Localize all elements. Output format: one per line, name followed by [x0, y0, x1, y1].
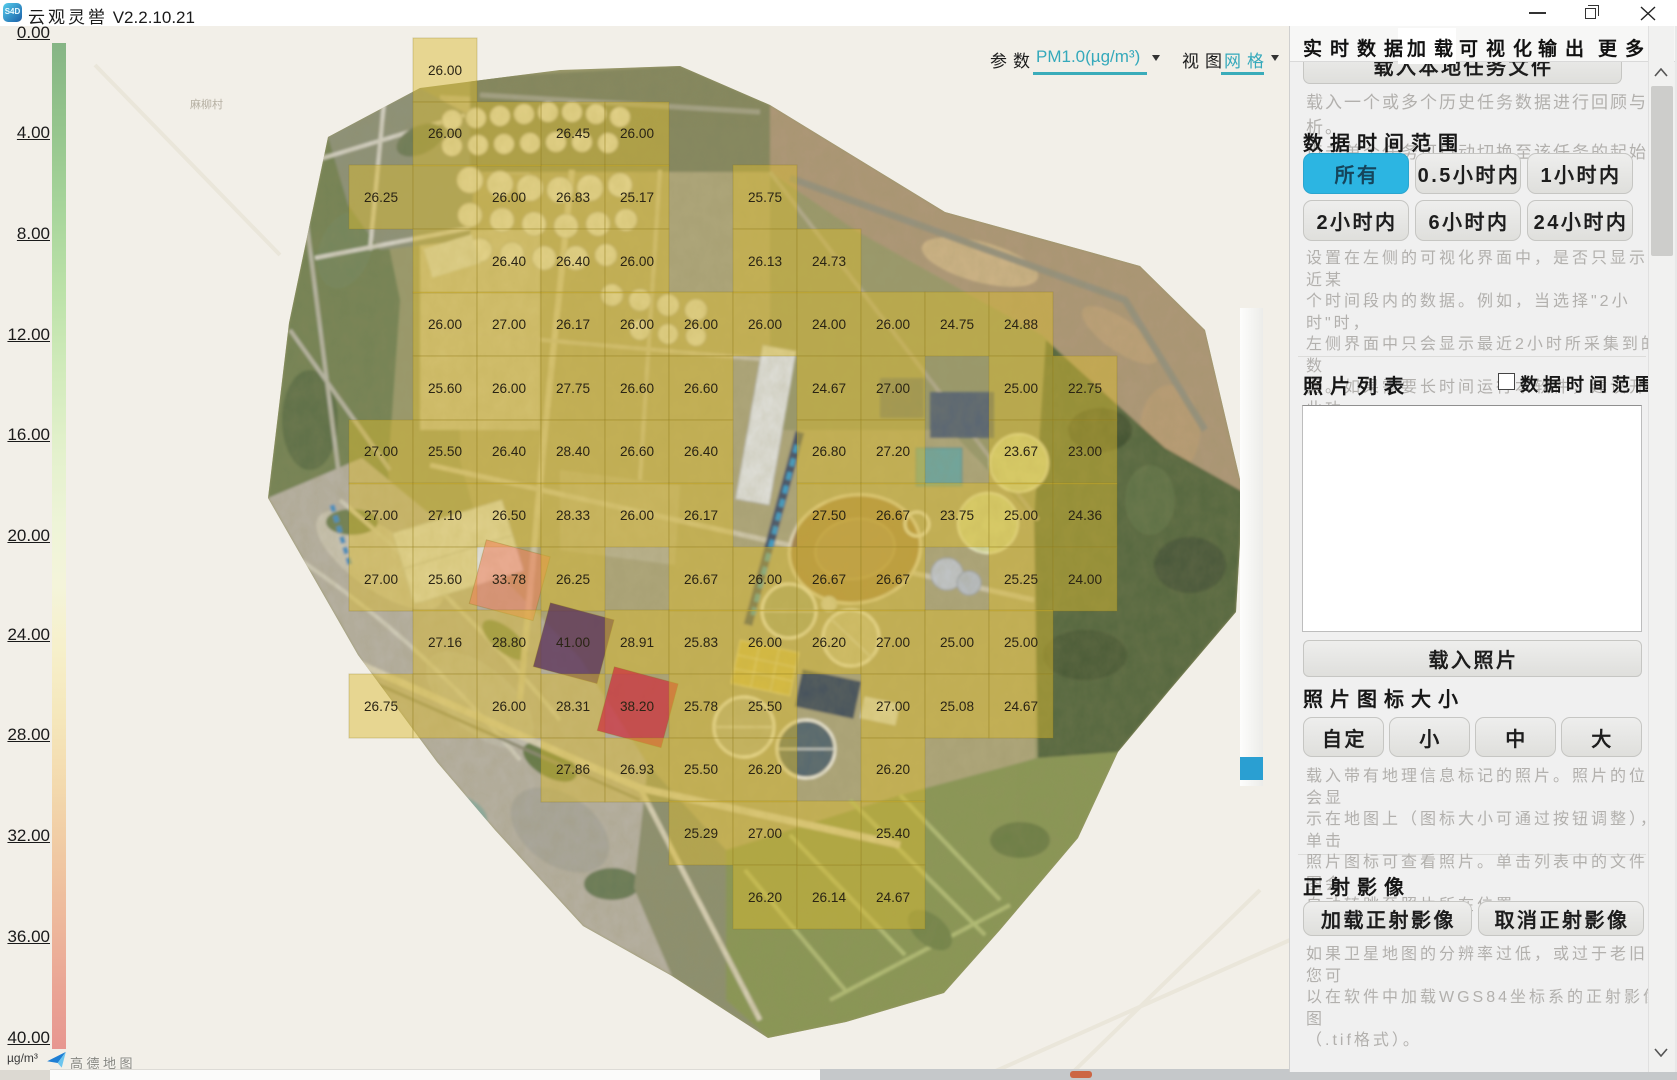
- svg-text:27.75: 27.75: [556, 381, 590, 396]
- svg-text:26.40: 26.40: [684, 444, 718, 459]
- svg-text:26.00: 26.00: [876, 317, 910, 332]
- svg-text:26.60: 26.60: [684, 381, 718, 396]
- svg-text:26.67: 26.67: [684, 572, 718, 587]
- svg-text:25.40: 25.40: [876, 826, 910, 841]
- svg-text:26.40: 26.40: [492, 444, 526, 459]
- svg-text:麻柳村: 麻柳村: [190, 97, 223, 111]
- svg-text:27.00: 27.00: [876, 635, 910, 650]
- svg-text:26.67: 26.67: [876, 572, 910, 587]
- svg-text:24.67: 24.67: [812, 381, 846, 396]
- svg-text:25.50: 25.50: [748, 699, 782, 714]
- svg-text:26.75: 26.75: [364, 699, 398, 714]
- svg-text:28.80: 28.80: [492, 635, 526, 650]
- svg-text:26.60: 26.60: [620, 444, 654, 459]
- svg-text:25.00: 25.00: [1004, 508, 1038, 523]
- svg-text:26.80: 26.80: [812, 444, 846, 459]
- svg-text:25.75: 25.75: [748, 190, 782, 205]
- svg-text:26.50: 26.50: [492, 508, 526, 523]
- svg-text:26.00: 26.00: [620, 317, 654, 332]
- svg-text:26.93: 26.93: [620, 762, 654, 777]
- svg-text:25.08: 25.08: [940, 699, 974, 714]
- svg-text:25.78: 25.78: [684, 699, 718, 714]
- svg-text:25.60: 25.60: [428, 572, 462, 587]
- svg-text:26.40: 26.40: [492, 254, 526, 269]
- svg-text:26.25: 26.25: [364, 190, 398, 205]
- svg-text:26.00: 26.00: [748, 572, 782, 587]
- svg-text:26.00: 26.00: [492, 699, 526, 714]
- svg-text:24.00: 24.00: [1068, 572, 1102, 587]
- svg-text:25.29: 25.29: [684, 826, 718, 841]
- svg-text:26.67: 26.67: [812, 572, 846, 587]
- svg-text:24.88: 24.88: [1004, 317, 1038, 332]
- svg-text:41.00: 41.00: [556, 635, 590, 650]
- svg-text:33.78: 33.78: [492, 572, 526, 587]
- svg-text:28.31: 28.31: [556, 699, 590, 714]
- svg-text:38.20: 38.20: [620, 699, 654, 714]
- svg-text:25.00: 25.00: [1004, 635, 1038, 650]
- svg-text:26.20: 26.20: [748, 890, 782, 905]
- svg-text:26.67: 26.67: [876, 508, 910, 523]
- svg-text:26.13: 26.13: [748, 254, 782, 269]
- svg-text:27.00: 27.00: [876, 381, 910, 396]
- svg-text:26.00: 26.00: [620, 508, 654, 523]
- svg-text:25.50: 25.50: [428, 444, 462, 459]
- svg-text:23.67: 23.67: [1004, 444, 1038, 459]
- svg-text:26.00: 26.00: [428, 63, 462, 78]
- svg-text:24.75: 24.75: [940, 317, 974, 332]
- svg-text:25.50: 25.50: [684, 762, 718, 777]
- svg-text:26.20: 26.20: [748, 762, 782, 777]
- svg-text:27.20: 27.20: [876, 444, 910, 459]
- svg-text:26.00: 26.00: [428, 317, 462, 332]
- svg-text:25.00: 25.00: [940, 635, 974, 650]
- svg-text:26.00: 26.00: [748, 317, 782, 332]
- svg-text:26.25: 26.25: [556, 572, 590, 587]
- svg-text:25.25: 25.25: [1004, 572, 1038, 587]
- svg-text:24.67: 24.67: [1004, 699, 1038, 714]
- svg-text:26.20: 26.20: [876, 762, 910, 777]
- svg-text:26.00: 26.00: [492, 190, 526, 205]
- svg-text:26.83: 26.83: [556, 190, 590, 205]
- svg-text:26.20: 26.20: [812, 635, 846, 650]
- svg-text:28.91: 28.91: [620, 635, 654, 650]
- svg-text:27.16: 27.16: [428, 635, 462, 650]
- svg-text:26.17: 26.17: [556, 317, 590, 332]
- svg-text:25.17: 25.17: [620, 190, 654, 205]
- svg-text:27.00: 27.00: [364, 444, 398, 459]
- svg-text:26.60: 26.60: [620, 381, 654, 396]
- svg-text:25.00: 25.00: [1004, 381, 1038, 396]
- svg-text:23.75: 23.75: [940, 508, 974, 523]
- svg-text:26.00: 26.00: [428, 126, 462, 141]
- svg-text:26.00: 26.00: [620, 126, 654, 141]
- svg-text:26.40: 26.40: [556, 254, 590, 269]
- svg-text:28.33: 28.33: [556, 508, 590, 523]
- svg-text:24.67: 24.67: [876, 890, 910, 905]
- svg-text:23.00: 23.00: [1068, 444, 1102, 459]
- svg-text:26.00: 26.00: [620, 254, 654, 269]
- svg-text:25.60: 25.60: [428, 381, 462, 396]
- svg-text:27.00: 27.00: [876, 699, 910, 714]
- svg-text:27.00: 27.00: [748, 826, 782, 841]
- svg-text:27.00: 27.00: [364, 508, 398, 523]
- svg-text:28.40: 28.40: [556, 444, 590, 459]
- svg-text:26.45: 26.45: [556, 126, 590, 141]
- svg-text:26.00: 26.00: [684, 317, 718, 332]
- svg-text:26.00: 26.00: [748, 635, 782, 650]
- svg-text:27.86: 27.86: [556, 762, 590, 777]
- svg-text:22.75: 22.75: [1068, 381, 1102, 396]
- svg-text:26.14: 26.14: [812, 890, 846, 905]
- svg-text:27.00: 27.00: [492, 317, 526, 332]
- svg-text:24.36: 24.36: [1068, 508, 1102, 523]
- svg-text:26.17: 26.17: [684, 508, 718, 523]
- svg-text:26.00: 26.00: [492, 381, 526, 396]
- svg-text:24.00: 24.00: [812, 317, 846, 332]
- svg-text:24.73: 24.73: [812, 254, 846, 269]
- svg-text:27.50: 27.50: [812, 508, 846, 523]
- svg-text:27.10: 27.10: [428, 508, 462, 523]
- svg-text:27.00: 27.00: [364, 572, 398, 587]
- svg-text:25.83: 25.83: [684, 635, 718, 650]
